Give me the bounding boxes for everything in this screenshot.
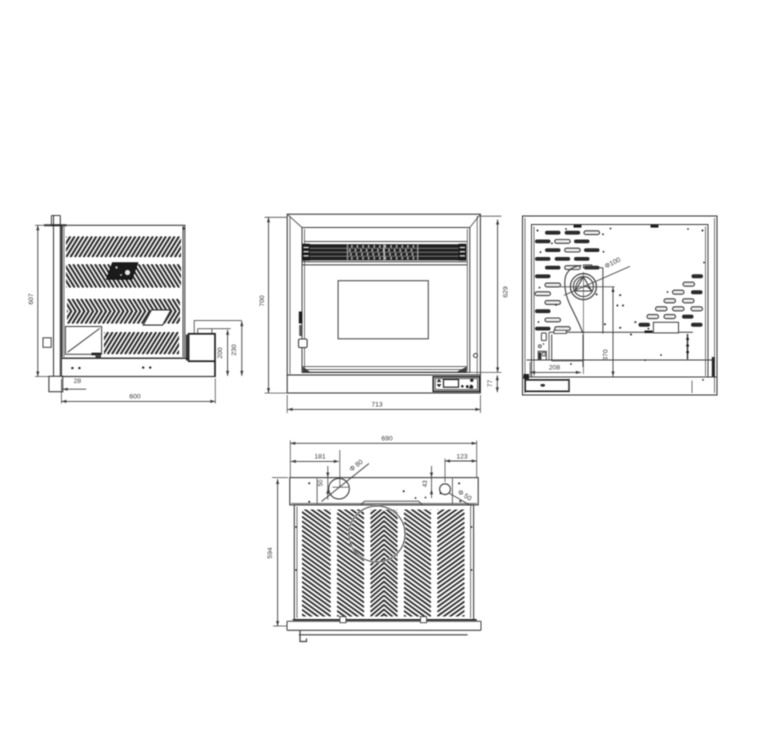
svg-text:123: 123: [456, 453, 468, 460]
svg-text:629: 629: [503, 286, 510, 298]
svg-text:43: 43: [423, 480, 429, 487]
svg-text:230: 230: [231, 344, 238, 356]
svg-text:50: 50: [318, 479, 324, 486]
svg-text:200: 200: [217, 347, 224, 359]
svg-text:181: 181: [314, 453, 326, 460]
svg-text:700: 700: [259, 295, 266, 307]
svg-text:370: 370: [603, 349, 610, 361]
svg-text:208: 208: [549, 364, 561, 371]
svg-text:77: 77: [487, 380, 494, 388]
svg-text:28: 28: [74, 378, 82, 385]
svg-text:600: 600: [129, 393, 141, 400]
svg-text:690: 690: [381, 436, 393, 443]
svg-text:594: 594: [267, 547, 274, 559]
svg-text:607: 607: [28, 293, 35, 305]
svg-text:713: 713: [371, 401, 383, 408]
